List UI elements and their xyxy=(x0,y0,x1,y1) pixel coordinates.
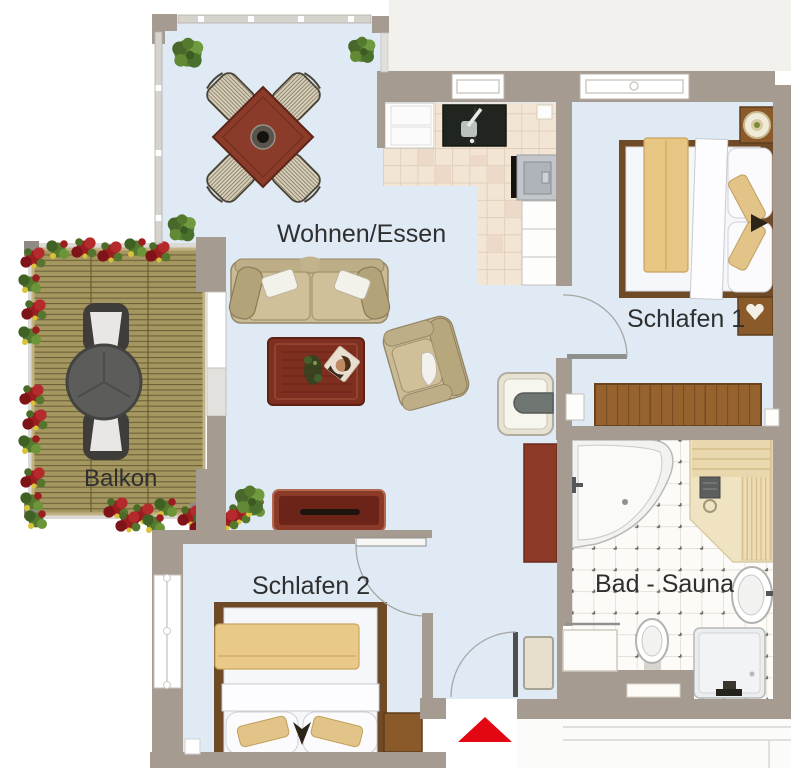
svg-text:Balkon: Balkon xyxy=(84,465,157,492)
svg-text:Wohnen/Essen: Wohnen/Essen xyxy=(277,220,446,248)
svg-text:Schlafen 1: Schlafen 1 xyxy=(627,305,745,333)
svg-text:Schlafen 2: Schlafen 2 xyxy=(252,572,370,600)
svg-text:Bad - Sauna: Bad - Sauna xyxy=(595,570,734,598)
